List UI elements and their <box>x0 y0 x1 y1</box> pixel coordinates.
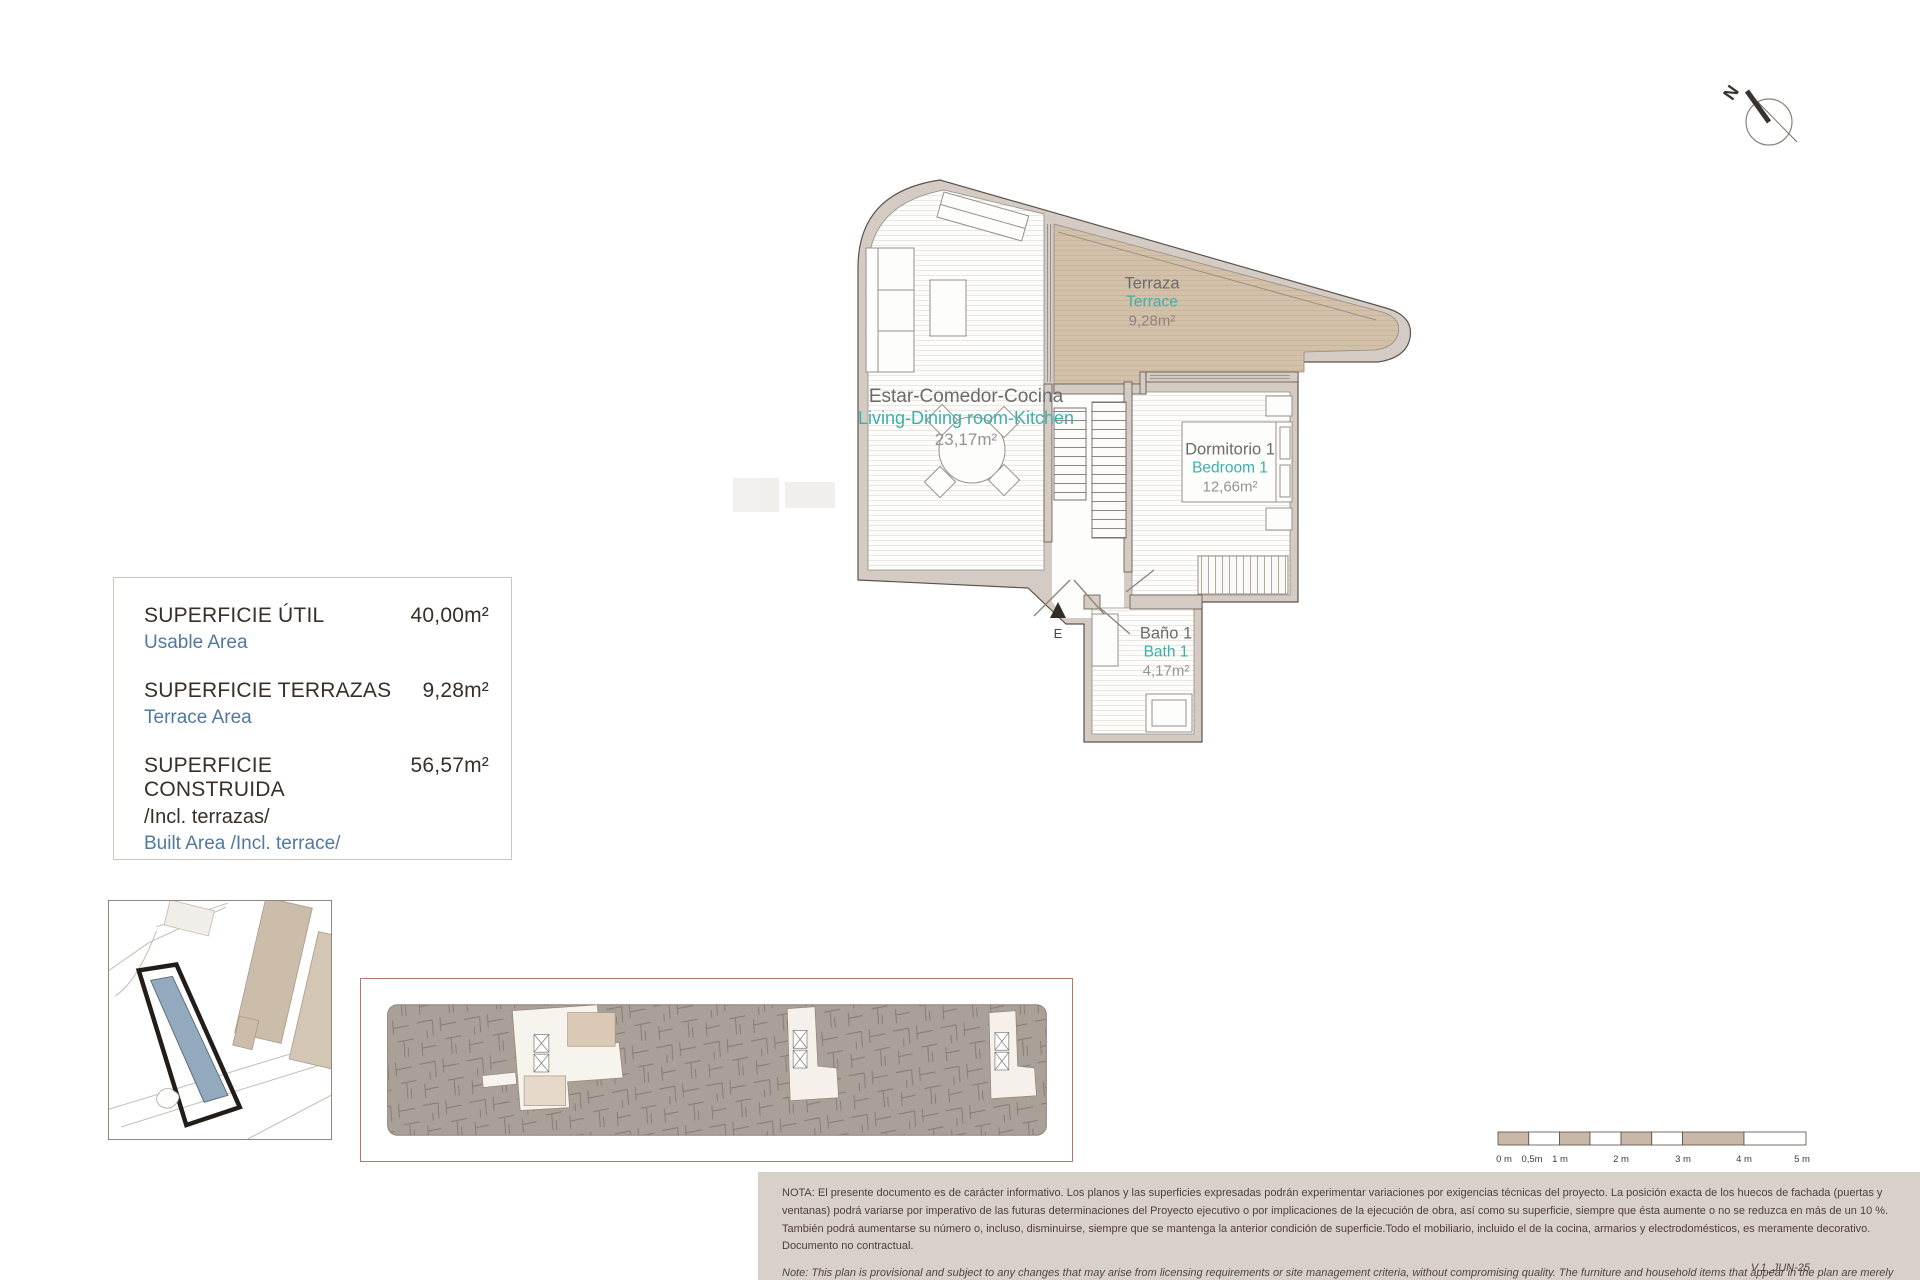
area-summary-table: SUPERFICIE ÚTIL 40,00m² Usable Area SUPE… <box>113 577 512 860</box>
room-label-terrace: Terraza Terrace 9,28m² <box>1124 273 1179 330</box>
legal-note: NOTA: El presente documento es de caráct… <box>758 1172 1920 1280</box>
floor-plan-page: N <box>0 0 1920 1280</box>
area-value: 9,28m² <box>422 679 489 703</box>
sofa <box>866 248 914 372</box>
site-building-outline <box>164 901 214 936</box>
living-room-floor <box>868 190 1044 570</box>
area-row-usable: SUPERFICIE ÚTIL 40,00m² Usable Area <box>144 604 489 654</box>
pillow <box>1280 427 1290 459</box>
site-plan-thumbnail <box>108 900 332 1140</box>
nightstand <box>1266 396 1292 416</box>
note-english: Note: This plan is provisional and subje… <box>782 1265 1896 1280</box>
area-value: 56,57m² <box>411 754 489 778</box>
room-name-en: Living-Dining room-Kitchen <box>858 408 1074 430</box>
room-name-en: Bedroom 1 <box>1185 459 1275 478</box>
plan-version: V.1_JUN-25 <box>1751 1262 1810 1274</box>
pillow <box>1280 465 1290 497</box>
watermark <box>733 476 841 518</box>
room-name-en: Bath 1 <box>1140 643 1192 662</box>
svg-text:3 m: 3 m <box>1675 1154 1691 1165</box>
note-spanish: NOTA: El presente documento es de caráct… <box>782 1185 1896 1256</box>
room-name-es: Terraza <box>1124 273 1179 293</box>
key-plan-strip <box>360 978 1073 1162</box>
svg-text:4 m: 4 m <box>1736 1154 1752 1165</box>
bath-sink <box>1092 614 1118 666</box>
svg-text:2 m: 2 m <box>1613 1154 1629 1165</box>
svg-text:5 m: 5 m <box>1794 1154 1810 1165</box>
north-label: N <box>1719 81 1743 103</box>
area-row-terrace: SUPERFICIE TERRAZAS 9,28m² Terrace Area <box>144 679 489 729</box>
svg-text:0 m: 0 m <box>1496 1154 1512 1165</box>
room-label-bedroom: Dormitorio 1 Bedroom 1 12,66m² <box>1185 439 1275 496</box>
site-building <box>233 1016 259 1049</box>
nightstand <box>1266 508 1292 530</box>
room-area: 12,66m² <box>1185 478 1275 496</box>
wardrobe <box>1198 556 1288 594</box>
entry-label: E <box>1054 626 1063 641</box>
room-name-es: Estar-Comedor-Cocina <box>858 385 1074 408</box>
area-label-es: SUPERFICIE ÚTIL <box>144 604 324 628</box>
coffee-table <box>930 280 966 336</box>
area-label-es: SUPERFICIE TERRAZAS <box>144 679 391 703</box>
area-label-es2: /Incl. terrazas/ <box>144 806 489 829</box>
room-name-es: Baño 1 <box>1140 623 1192 643</box>
area-label-en: Built Area /Incl. terrace/ <box>144 833 489 855</box>
room-area: 4,17m² <box>1140 662 1192 680</box>
svg-text:1 m: 1 m <box>1552 1154 1568 1165</box>
area-label-en: Usable Area <box>144 632 489 654</box>
room-name-es: Dormitorio 1 <box>1185 439 1275 459</box>
area-row-built: SUPERFICIE CONSTRUIDA 56,57m² /Incl. ter… <box>144 754 489 855</box>
area-label-es: SUPERFICIE CONSTRUIDA <box>144 754 411 802</box>
area-value: 40,00m² <box>411 604 489 628</box>
apartment-floor-plan: E Estar-Comedor-Cocina Living-Dining roo… <box>830 150 1420 750</box>
north-compass-icon: N <box>1712 58 1824 170</box>
room-label-living: Estar-Comedor-Cocina Living-Dining room-… <box>858 385 1074 451</box>
room-area: 23,17m² <box>858 430 1074 451</box>
svg-text:0,5m: 0,5m <box>1521 1154 1542 1165</box>
room-label-bath: Baño 1 Bath 1 4,17m² <box>1140 623 1192 680</box>
scale-labels: 0 m 0,5m 1 m 2 m 3 m 4 m 5 m <box>1496 1154 1810 1165</box>
room-area: 9,28m² <box>1124 312 1179 330</box>
room-name-en: Terrace <box>1124 293 1179 312</box>
area-label-en: Terrace Area <box>144 707 489 729</box>
scale-bar: 0 m 0,5m 1 m 2 m 3 m 4 m 5 m <box>1496 1124 1812 1168</box>
